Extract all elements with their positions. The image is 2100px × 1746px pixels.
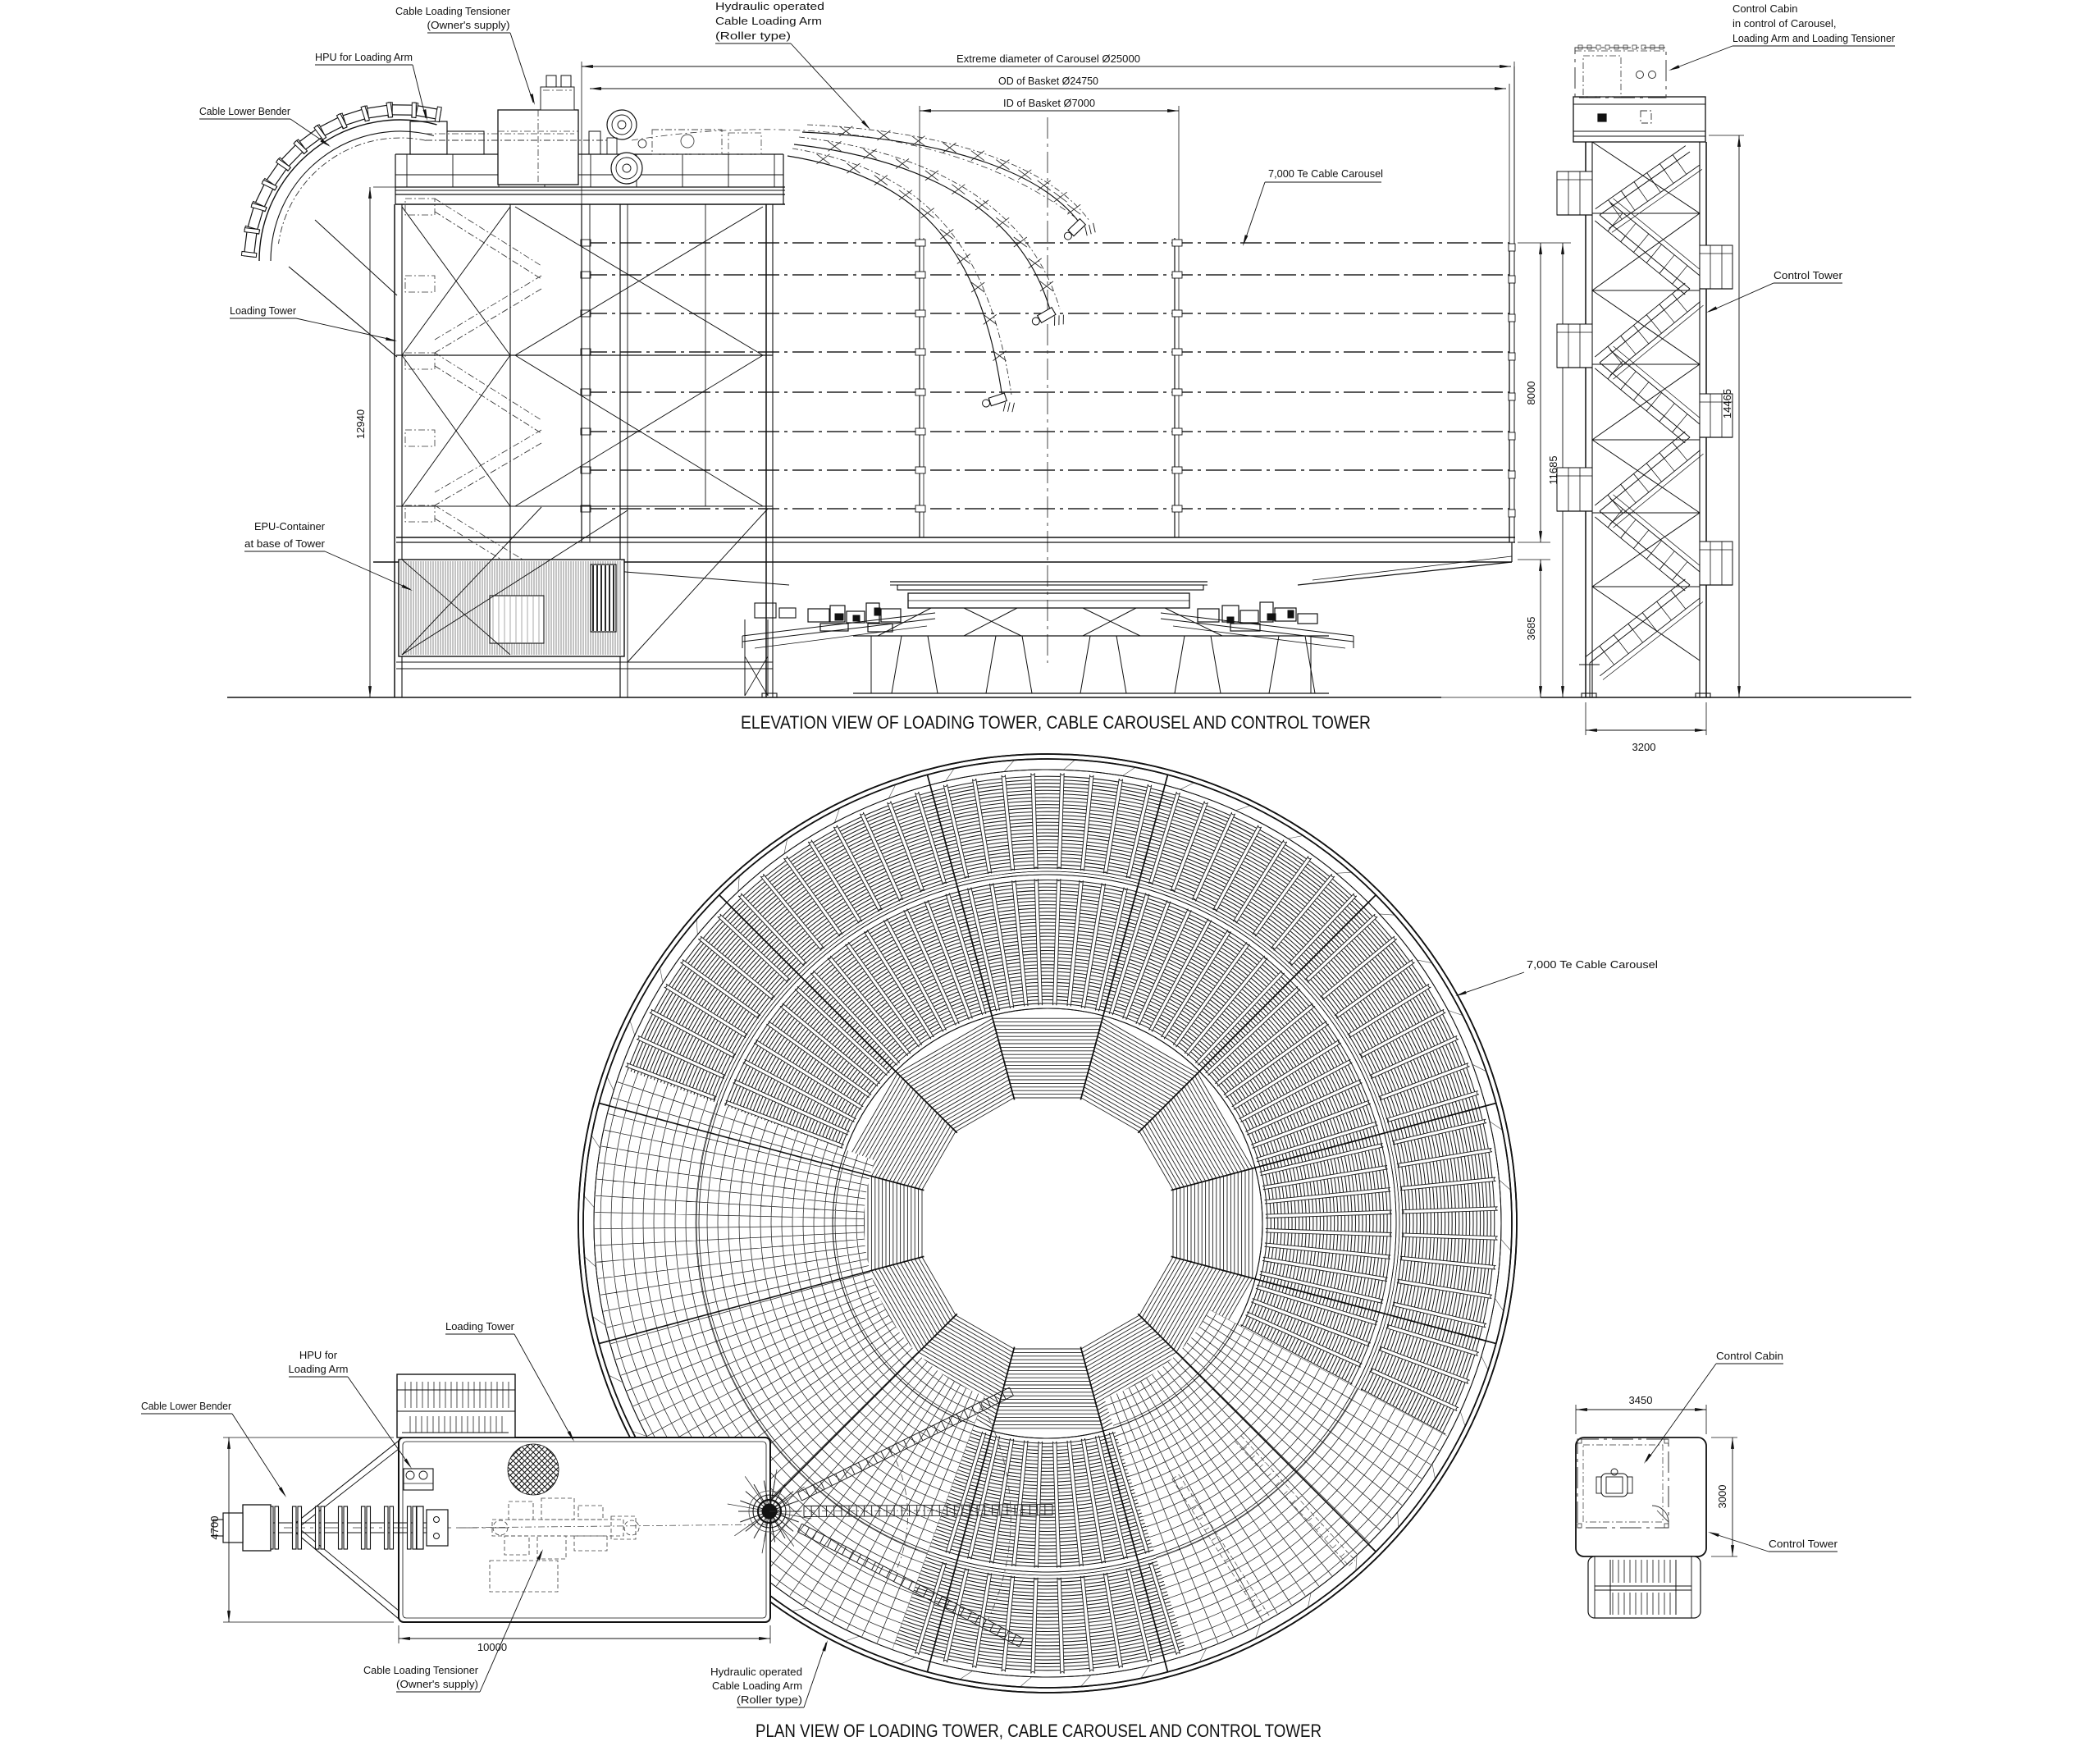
svg-text:Hydraulic operated: Hydraulic operated: [715, 0, 824, 12]
svg-text:Loading Arm and Loading Tensio: Loading Arm and Loading Tensioner: [1732, 32, 1896, 44]
svg-text:Control Tower: Control Tower: [1774, 269, 1843, 281]
svg-text:EPU-Container: EPU-Container: [254, 520, 326, 532]
svg-text:8000: 8000: [1525, 382, 1537, 405]
svg-text:Control Cabin: Control Cabin: [1732, 2, 1798, 15]
svg-text:(Roller type): (Roller type): [737, 1693, 802, 1706]
svg-text:3200: 3200: [1632, 741, 1656, 753]
svg-text:3685: 3685: [1525, 617, 1537, 641]
svg-text:ELEVATION VIEW OF LOADING TOWE: ELEVATION VIEW OF LOADING TOWER, CABLE C…: [741, 712, 1371, 733]
svg-text:(Owner's supply): (Owner's supply): [396, 1678, 478, 1690]
svg-text:HPU for: HPU for: [299, 1349, 338, 1361]
svg-text:4700: 4700: [208, 1516, 221, 1540]
svg-text:Extreme diameter of Carousel Ø: Extreme diameter of Carousel Ø25000: [956, 53, 1140, 65]
svg-text:Loading Tower: Loading Tower: [230, 304, 297, 317]
svg-text:Loading Tower: Loading Tower: [445, 1320, 515, 1332]
svg-text:Control Cabin: Control Cabin: [1716, 1350, 1783, 1362]
svg-text:in control of Carousel,: in control of Carousel,: [1732, 17, 1836, 30]
svg-text:Loading Arm: Loading Arm: [289, 1363, 349, 1375]
svg-text:7,000 Te Cable Carousel: 7,000 Te Cable Carousel: [1268, 167, 1383, 180]
svg-text:Control Tower: Control Tower: [1769, 1538, 1838, 1550]
svg-text:Cable Loading Arm: Cable Loading Arm: [712, 1680, 802, 1692]
svg-text:10000: 10000: [477, 1641, 507, 1653]
svg-text:Cable Loading Arm: Cable Loading Arm: [715, 15, 822, 27]
svg-text:3450: 3450: [1629, 1394, 1653, 1406]
svg-text:7,000 Te Cable Carousel: 7,000 Te Cable Carousel: [1527, 958, 1658, 971]
svg-text:3000: 3000: [1716, 1485, 1728, 1509]
svg-text:Cable Lower Bender: Cable Lower Bender: [141, 1400, 232, 1412]
svg-text:12940: 12940: [354, 409, 367, 439]
svg-text:PLAN VIEW OF LOADING TOWER, CA: PLAN VIEW OF LOADING TOWER, CABLE CAROUS…: [756, 1721, 1322, 1741]
svg-text:Cable Loading Tensioner: Cable Loading Tensioner: [395, 5, 511, 17]
svg-text:Hydraulic operated: Hydraulic operated: [710, 1666, 802, 1678]
svg-text:(Owner's supply): (Owner's supply): [427, 19, 510, 31]
svg-text:Cable Loading Tensioner: Cable Loading Tensioner: [363, 1664, 479, 1676]
svg-text:(Roller type): (Roller type): [715, 30, 791, 42]
svg-text:HPU for Loading Arm: HPU for Loading Arm: [315, 51, 413, 63]
svg-text:OD of Basket Ø24750: OD of Basket Ø24750: [998, 75, 1098, 87]
svg-text:at base of Tower: at base of Tower: [244, 537, 326, 550]
svg-text:ID of Basket Ø7000: ID of Basket Ø7000: [1003, 97, 1095, 109]
svg-text:14465: 14465: [1721, 389, 1733, 418]
svg-text:Cable Lower Bender: Cable Lower Bender: [199, 105, 291, 117]
